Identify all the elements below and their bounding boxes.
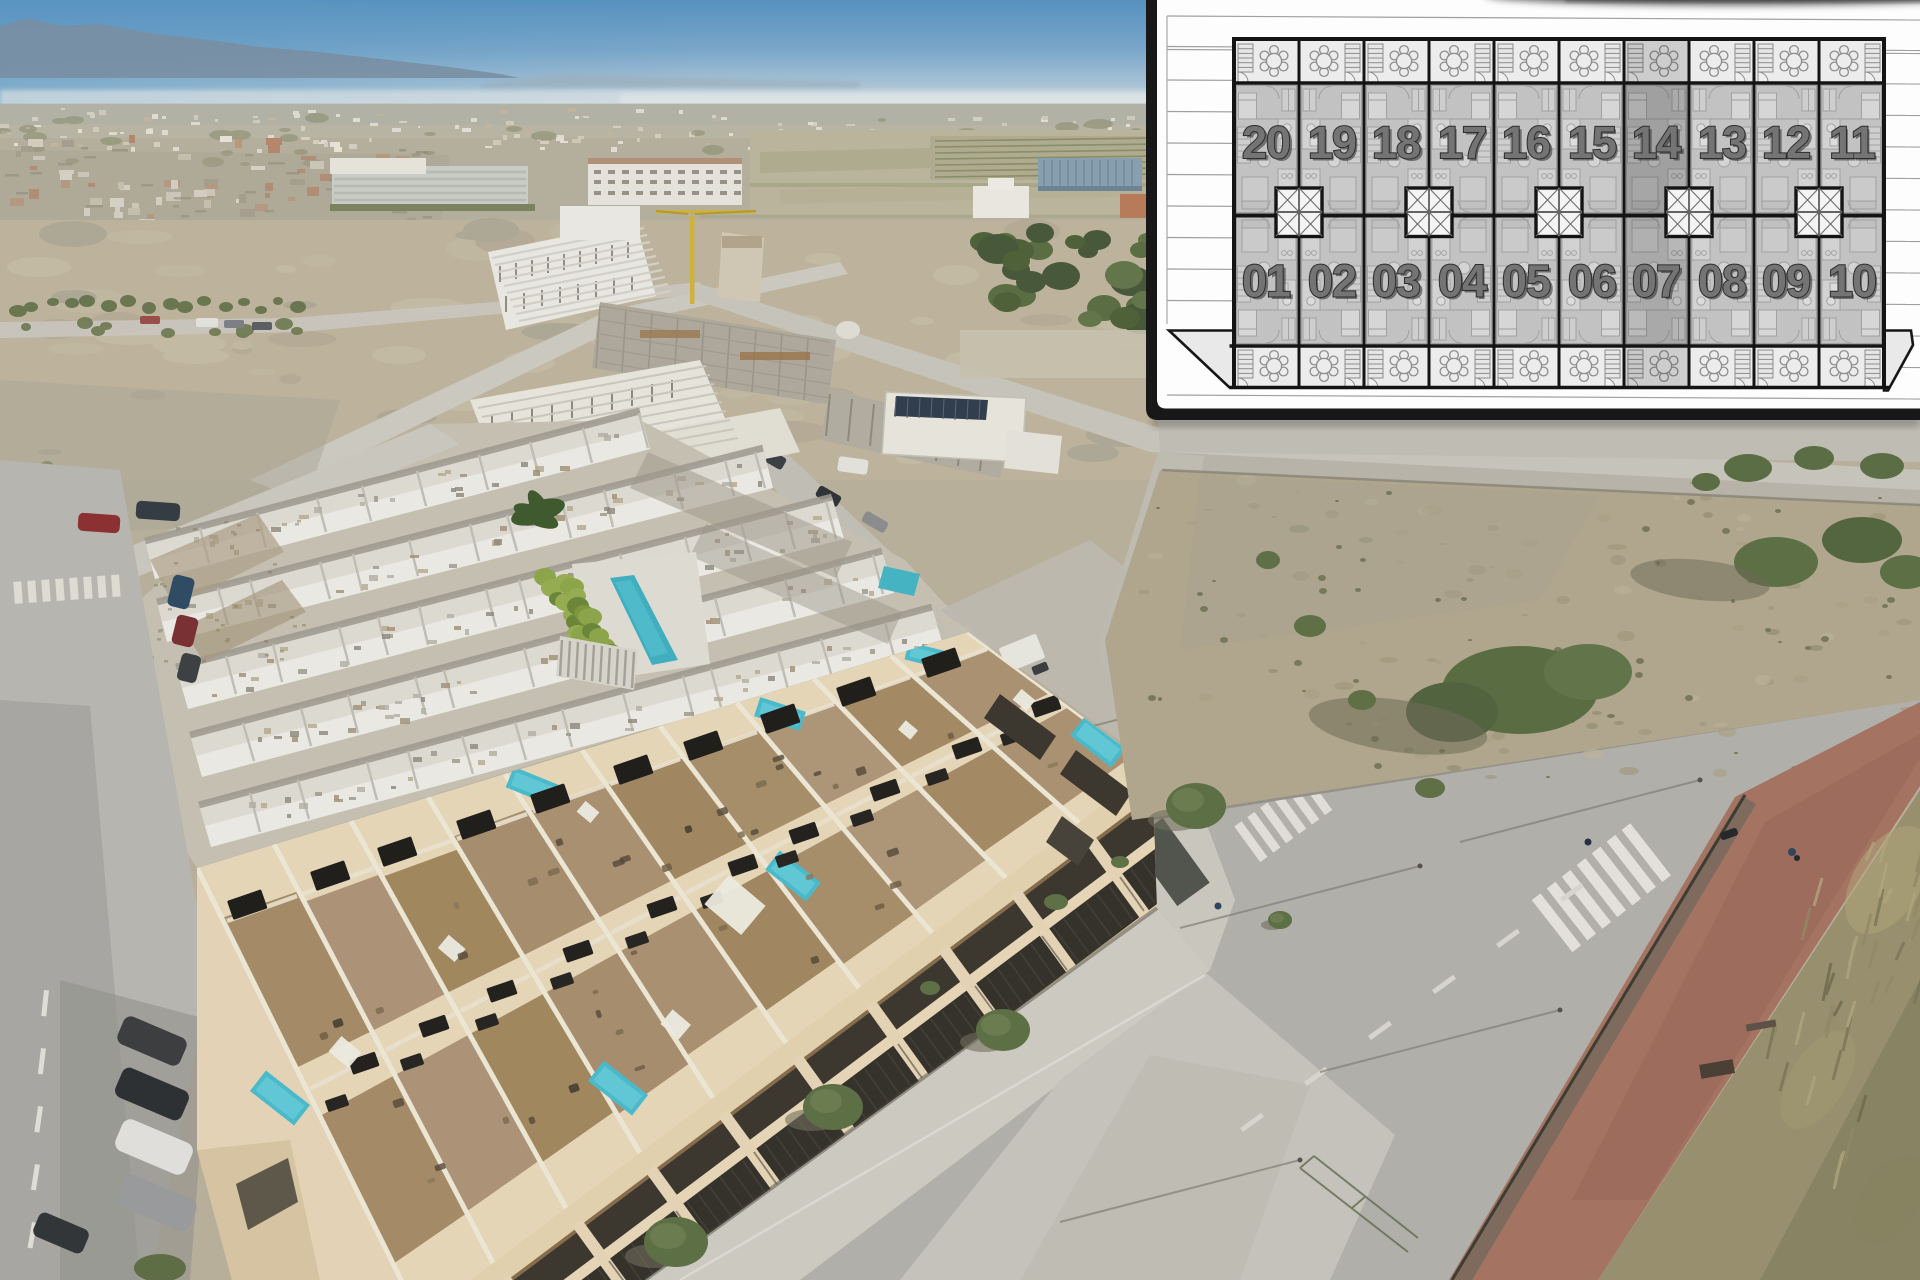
svg-text:20: 20 xyxy=(1242,117,1290,168)
svg-text:14: 14 xyxy=(1632,117,1681,168)
svg-text:16: 16 xyxy=(1502,117,1550,168)
svg-text:05: 05 xyxy=(1502,256,1550,307)
svg-text:08: 08 xyxy=(1698,256,1746,307)
svg-text:09: 09 xyxy=(1762,256,1810,307)
svg-text:11: 11 xyxy=(1829,117,1875,168)
svg-text:19: 19 xyxy=(1308,117,1356,168)
svg-text:18: 18 xyxy=(1372,117,1420,168)
svg-text:07: 07 xyxy=(1632,256,1680,307)
svg-text:06: 06 xyxy=(1568,256,1616,307)
svg-text:02: 02 xyxy=(1308,256,1356,307)
svg-text:13: 13 xyxy=(1698,117,1746,168)
svg-text:10: 10 xyxy=(1828,256,1876,307)
svg-text:15: 15 xyxy=(1568,117,1616,168)
svg-text:01: 01 xyxy=(1242,256,1290,307)
svg-text:03: 03 xyxy=(1372,256,1420,307)
svg-text:04: 04 xyxy=(1438,256,1487,307)
svg-text:12: 12 xyxy=(1762,117,1810,168)
svg-text:17: 17 xyxy=(1438,117,1486,168)
